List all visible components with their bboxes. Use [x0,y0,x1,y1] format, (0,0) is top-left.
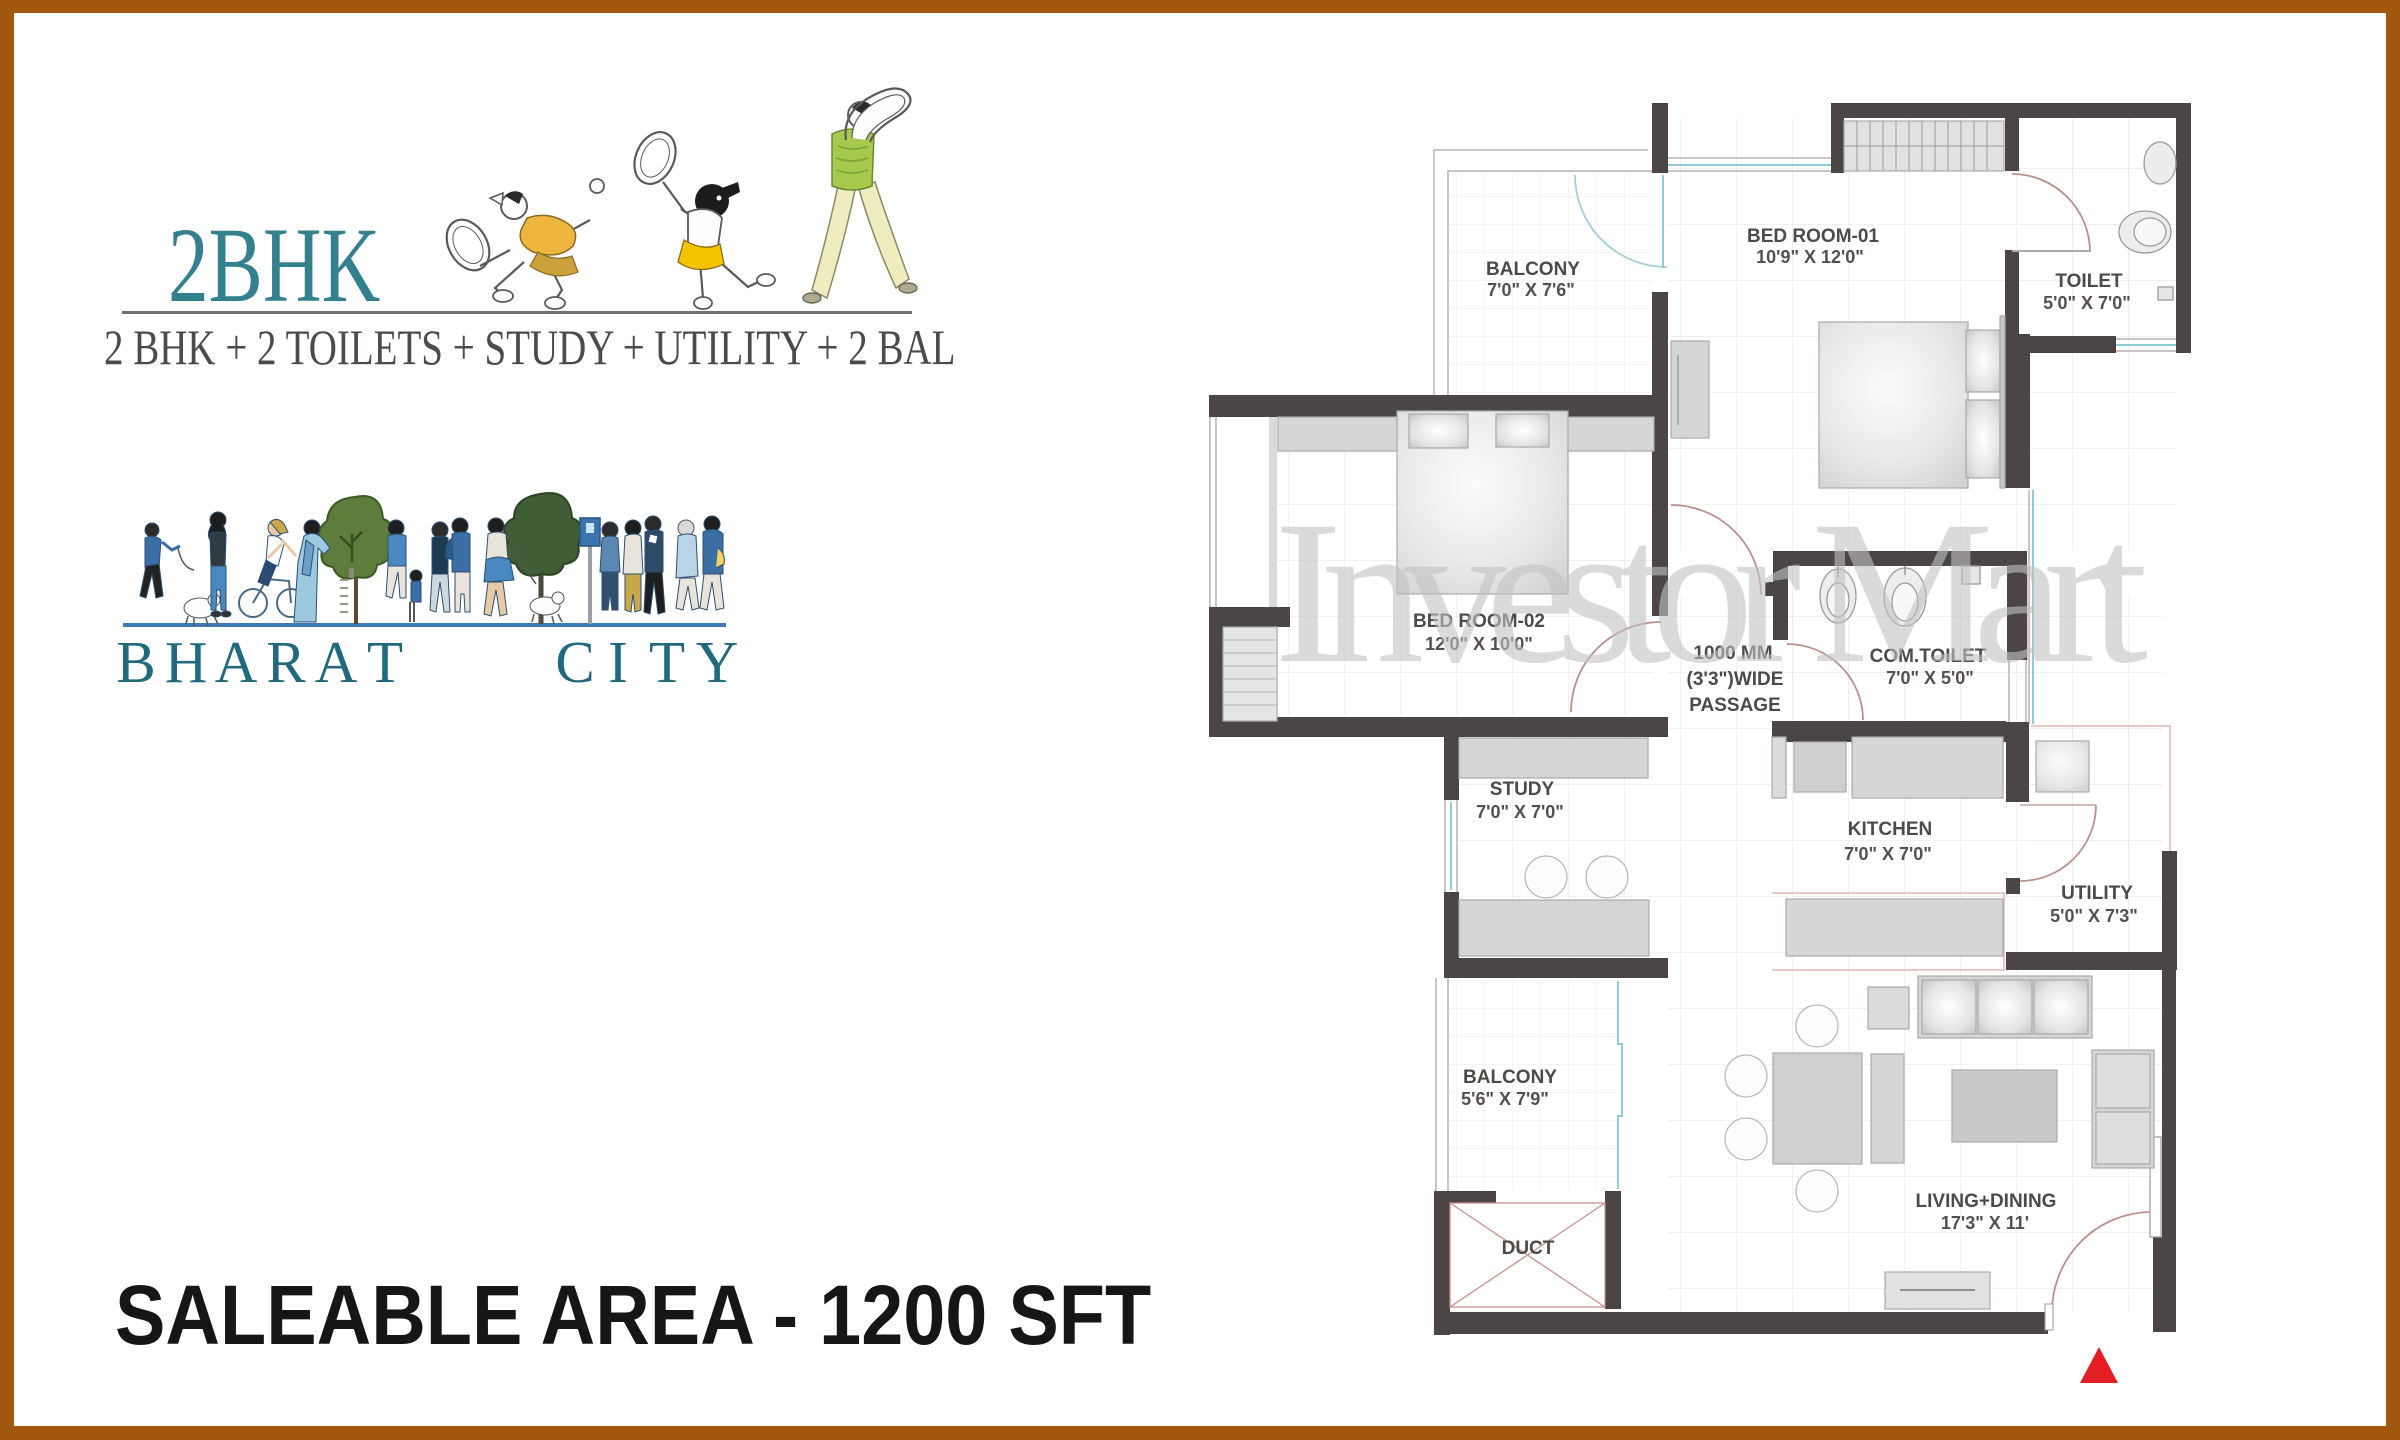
svg-text:BALCONY: BALCONY [1486,259,1580,280]
svg-text:UTILITY: UTILITY [2061,883,2133,904]
svg-text:SALEABLE AREA - 1200 SFT: SALEABLE AREA - 1200 SFT [115,1268,1151,1362]
svg-text:5'6" X 7'9": 5'6" X 7'9" [1461,1089,1549,1109]
svg-text:LIVING+DINING: LIVING+DINING [1916,1191,2057,1212]
svg-text:7'0" X 7'0": 7'0" X 7'0" [1844,844,1932,864]
svg-text:R: R [266,629,306,695]
svg-text:17'3" X 11': 17'3" X 11' [1941,1213,2029,1233]
svg-text:BED ROOM-01: BED ROOM-01 [1747,226,1879,247]
svg-text:5'0" X 7'0": 5'0" X 7'0" [2043,293,2131,313]
svg-text:T: T [649,629,685,695]
svg-text:A: A [215,629,258,695]
svg-text:I: I [608,629,628,695]
svg-text:TOILET: TOILET [2055,271,2123,292]
svg-text:7'0" X 7'6": 7'0" X 7'6" [1487,280,1575,300]
svg-text:7'0" X 7'0": 7'0" X 7'0" [1476,802,1564,822]
svg-text:10'9" X 12'0": 10'9" X 12'0" [1756,247,1864,267]
svg-text:H: H [165,629,208,695]
svg-text:Investor Mart: Investor Mart [1274,479,2148,706]
svg-text:B: B [116,629,155,695]
svg-text:2BHK: 2BHK [168,205,380,324]
svg-text:KITCHEN: KITCHEN [1848,819,1932,840]
svg-text:2 BHK + 2 TOILETS + STUDY + UT: 2 BHK + 2 TOILETS + STUDY + UTILITY + 2 … [104,319,955,375]
svg-text:Y: Y [696,629,739,695]
svg-text:5'0" X 7'3": 5'0" X 7'3" [2050,906,2138,926]
svg-text:BALCONY: BALCONY [1463,1067,1557,1088]
svg-text:C: C [555,629,594,695]
svg-text:T: T [367,629,403,695]
svg-text:STUDY: STUDY [1490,779,1555,800]
svg-text:DUCT: DUCT [1502,1238,1555,1259]
svg-text:A: A [315,629,358,695]
